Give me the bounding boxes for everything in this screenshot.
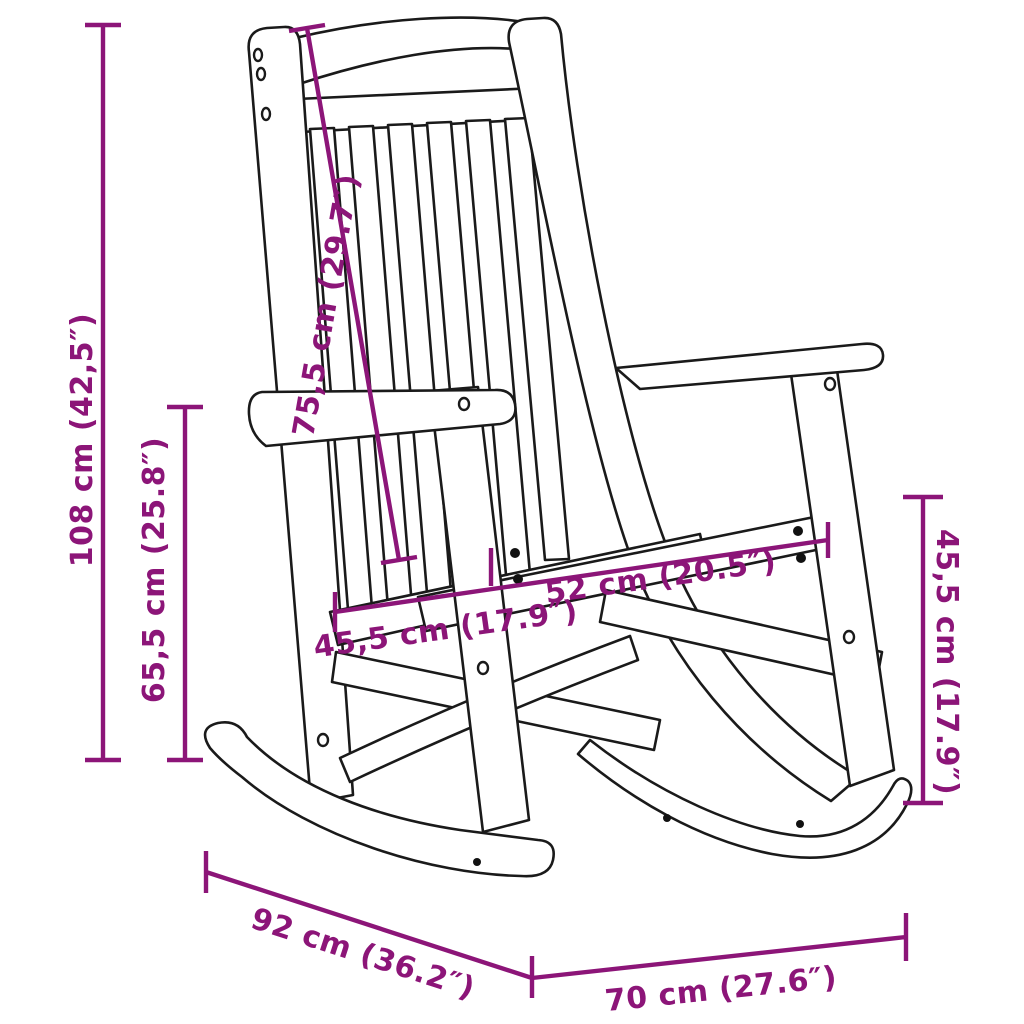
- screw-hole: [825, 378, 835, 390]
- dimension-armrest-height: 65,5 cm (25.8″): [137, 407, 203, 760]
- screw: [796, 553, 806, 563]
- screw: [663, 814, 671, 822]
- screw-hole: [459, 398, 469, 410]
- front-right-leg: [790, 363, 894, 786]
- dimension-side-height: 45,5 cm (17.9″): [903, 497, 964, 803]
- screw-hole: [254, 49, 262, 61]
- crest-rail: [295, 18, 530, 84]
- screw: [513, 574, 523, 584]
- dimension-label-side-height: 45,5 cm (17.9″): [929, 529, 964, 795]
- screw: [796, 820, 804, 828]
- dimension-label-armrest-height: 65,5 cm (25.8″): [137, 437, 172, 703]
- rocking-chair-drawing: [205, 18, 911, 877]
- dimension-diagram: 108 cm (42,5″) 65,5 cm (25.8″) 75,5 cm (…: [0, 0, 1024, 1024]
- screw-hole: [257, 68, 265, 80]
- dimension-label-rocker-depth: 92 cm (36.2″): [247, 901, 479, 1006]
- dimension-overall-width: 70 cm (27.6″): [532, 913, 906, 1019]
- screw: [510, 548, 520, 558]
- screw-hole: [318, 734, 328, 746]
- dimension-line: [532, 913, 906, 978]
- screw-hole: [478, 662, 488, 674]
- rocking-chair-diagram: 108 cm (42,5″) 65,5 cm (25.8″) 75,5 cm (…: [0, 0, 1024, 1024]
- screw-hole: [844, 631, 854, 643]
- screw: [473, 858, 481, 866]
- dimension-line: [167, 407, 203, 760]
- dimension-overall-height: 108 cm (42,5″): [65, 25, 121, 760]
- screw-hole: [262, 108, 270, 120]
- dimension-label-overall-height: 108 cm (42,5″): [65, 313, 100, 567]
- right-armrest: [616, 344, 883, 389]
- dimension-label-overall-width: 70 cm (27.6″): [603, 960, 838, 1019]
- screw: [793, 526, 803, 536]
